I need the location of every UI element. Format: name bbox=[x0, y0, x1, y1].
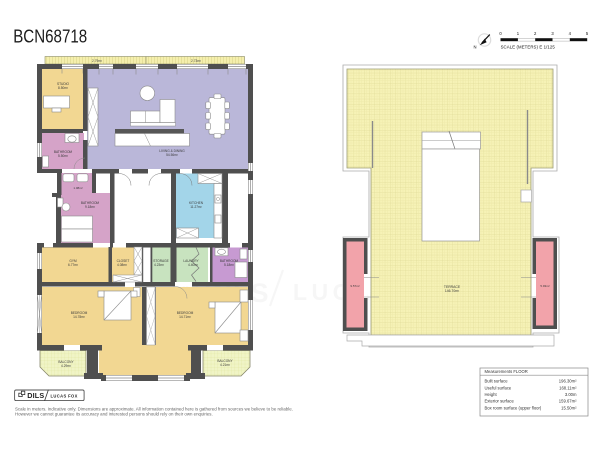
svg-text:However we cannot guarantee it: However we cannot guarantee its accuracy… bbox=[15, 412, 213, 417]
svg-text:168.11m²: 168.11m² bbox=[559, 385, 577, 390]
svg-text:Built surface: Built surface bbox=[485, 379, 509, 384]
svg-text:9.57m²: 9.57m² bbox=[350, 284, 359, 288]
svg-text:5.93m²: 5.93m² bbox=[540, 284, 549, 288]
svg-text:3.00m: 3.00m bbox=[565, 392, 577, 397]
svg-text:2.79m²: 2.79m² bbox=[92, 59, 102, 63]
svg-text:N: N bbox=[474, 45, 477, 50]
svg-text:STUDIO8.50m²: STUDIO8.50m² bbox=[57, 82, 70, 90]
svg-text:196.30m²: 196.30m² bbox=[559, 379, 577, 384]
svg-text:KITCHEN11.27m²: KITCHEN11.27m² bbox=[189, 201, 204, 209]
svg-text:2.73m²: 2.73m² bbox=[191, 59, 201, 63]
svg-text:GYM6.77m²: GYM6.77m² bbox=[68, 259, 78, 267]
svg-text:Useful surface: Useful surface bbox=[485, 385, 512, 390]
svg-text:15.50m²: 15.50m² bbox=[561, 405, 577, 410]
svg-text:TERRACE146.70m²: TERRACE146.70m² bbox=[444, 285, 461, 293]
svg-text:LUCAS FOX: LUCAS FOX bbox=[51, 393, 78, 398]
svg-text:Height: Height bbox=[485, 392, 498, 397]
svg-text:Box room surface (upper floor): Box room surface (upper floor) bbox=[485, 405, 542, 410]
svg-text:BCN68718: BCN68718 bbox=[13, 26, 87, 47]
svg-text:SCALE (METERS) E 1/125: SCALE (METERS) E 1/125 bbox=[501, 44, 556, 49]
svg-text:Measurements FLOOR: Measurements FLOOR bbox=[485, 369, 528, 374]
svg-text:Exterior surface: Exterior surface bbox=[485, 399, 515, 404]
svg-text:1.08m²: 1.08m² bbox=[73, 186, 82, 190]
svg-text:DILS: DILS bbox=[27, 391, 44, 400]
svg-text:159.67m²: 159.67m² bbox=[559, 399, 577, 404]
